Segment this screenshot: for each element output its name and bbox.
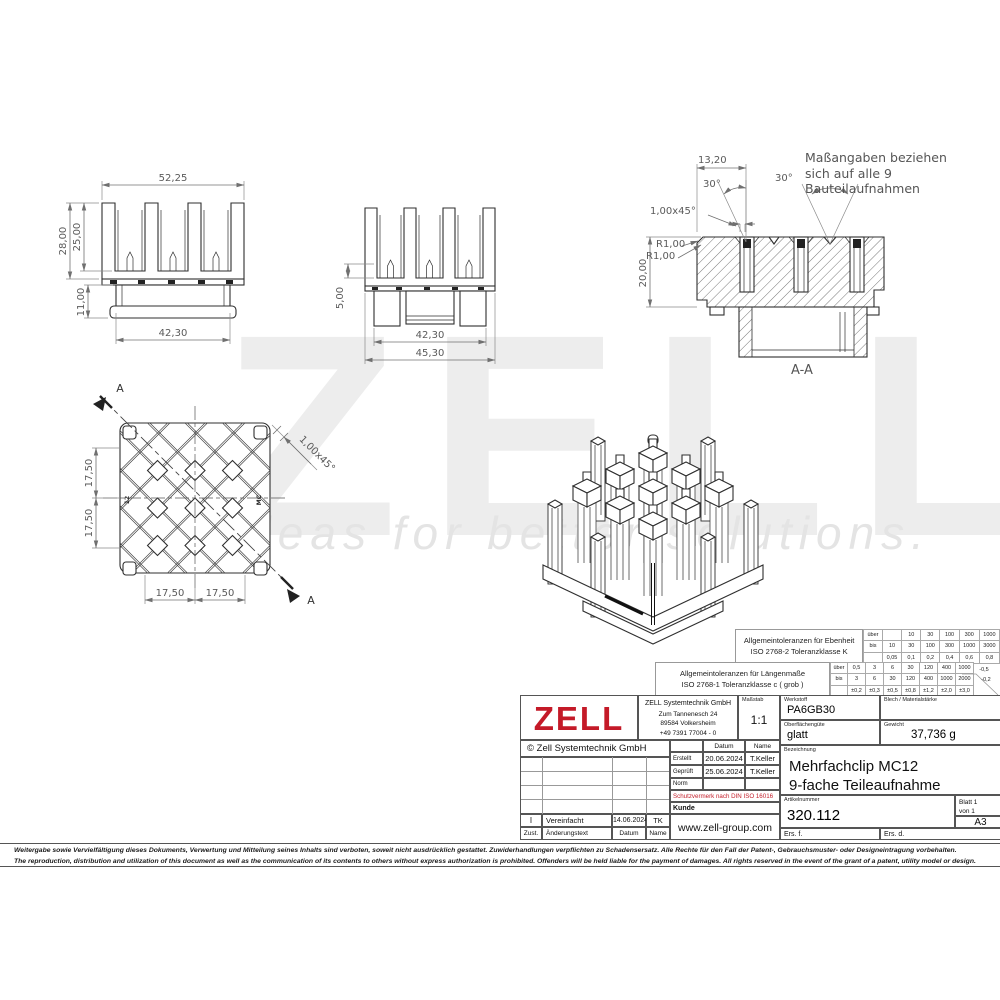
schutzvermerk: Schutzvermerk nach DIN ISO 16016 bbox=[670, 790, 780, 802]
disclaimer-english: The reproduction, distribution and utili… bbox=[14, 857, 1000, 868]
disclaimer-german: Weitergabe sowie Vervielfältigung dieses… bbox=[14, 846, 1000, 857]
designation-label: Bezeichnung bbox=[784, 747, 816, 753]
dim-section-chamfer: 1,00x45° bbox=[650, 206, 696, 217]
dim-side-width-outer: 45,30 bbox=[416, 348, 445, 359]
dim-top-pitch-h1: 17,50 bbox=[156, 588, 185, 599]
dim-front-height-outer: 28,00 bbox=[58, 227, 69, 256]
tolerance-flatness-grid: über10301003001000 bis103010030010003000… bbox=[863, 629, 1000, 664]
created-date: 20.06.2024 bbox=[703, 752, 745, 765]
checked-name: T.Keller bbox=[745, 765, 780, 778]
revision-col-text: Änderungstext bbox=[542, 827, 612, 840]
created-name: T.Keller bbox=[745, 752, 780, 765]
surface-label: Oberflächengüte bbox=[784, 722, 825, 728]
designation-line1: Mehrfachclip MC12 bbox=[789, 758, 918, 775]
tolerance-length-title-2: ISO 2768-1 Toleranzklasse c ( grob ) bbox=[656, 680, 829, 691]
side-view: 5,00 42,30 45,30 bbox=[330, 158, 540, 393]
sheet-number: Blatt 1 bbox=[959, 798, 1000, 807]
company-street: Zum Tannenesch 24 bbox=[639, 710, 737, 720]
title-block: ZELL ZELL Systemtechnik GmbH Zum Tannene… bbox=[520, 695, 1000, 840]
isometric-geometry bbox=[543, 435, 763, 644]
dim-section-angle-left: 30° bbox=[703, 179, 721, 190]
disclaimer: Weitergabe sowie Vervielfältigung dieses… bbox=[0, 843, 1000, 867]
front-view: 52,25 28,00 25,00 42,30 11,00 bbox=[50, 148, 300, 383]
drawing-note-line2: sich auf alle 9 Bauteilaufnahmen bbox=[805, 166, 1000, 197]
section-arrow-label-start: A bbox=[116, 382, 124, 395]
scale-label: Maßstab bbox=[742, 697, 763, 703]
drawing-note-line1: Maßangaben beziehen bbox=[805, 150, 1000, 166]
article-number-label: Artikelnummer bbox=[784, 797, 819, 803]
sheet-thickness-label: Blech / Materialstärke bbox=[884, 697, 937, 703]
article-number-value: 320.112 bbox=[787, 807, 840, 824]
kunde-label: Kunde bbox=[670, 802, 780, 814]
dim-section-radius-2: R1,00 bbox=[646, 251, 675, 262]
approval-col-name: Name bbox=[745, 740, 780, 752]
approval-corner-cell bbox=[670, 740, 703, 752]
drawing-note: Maßangaben beziehen sich auf alle 9 Baut… bbox=[805, 150, 1000, 197]
section-arrow-label-end: A bbox=[307, 594, 315, 607]
sheet-thickness-cell: Blech / Materialstärke bbox=[880, 695, 1000, 720]
replaced-by-label: Ers. d. bbox=[880, 828, 1000, 840]
weight-value: 37,736 g bbox=[911, 729, 956, 741]
material-value: PA6GB30 bbox=[787, 704, 835, 716]
article-number-cell: Artikelnummer 320.112 bbox=[780, 795, 955, 828]
dim-top-pitch-v1: 17,50 bbox=[84, 459, 95, 488]
revision-date: 14.06.2024 bbox=[612, 814, 646, 827]
website: www.zell-group.com bbox=[670, 814, 780, 840]
dim-section-radius-1: R1,00 bbox=[656, 239, 685, 250]
revision-col-datum: Datum bbox=[612, 827, 646, 840]
part-marking-right: MC bbox=[256, 494, 263, 505]
dim-front-width-base: 42,30 bbox=[159, 328, 188, 339]
company-name: ZELL Systemtechnik GmbH bbox=[639, 699, 737, 710]
created-label: Erstellt bbox=[670, 752, 703, 765]
company-phone: +49 7391 77004 - 0 bbox=[639, 729, 737, 739]
side-view-geometry bbox=[365, 208, 495, 326]
norm-name-cell bbox=[745, 778, 780, 790]
revision-index: I bbox=[520, 814, 542, 827]
revision-grid-divider bbox=[646, 757, 647, 814]
material-label: Werkstoff bbox=[784, 697, 807, 703]
edge-tolerance-fragment: -0,5 -0,2 bbox=[960, 662, 1000, 695]
company-logo: ZELL bbox=[520, 695, 638, 740]
edge-tolerance-lower: -0,2 bbox=[981, 677, 990, 683]
checked-label: Geprüft bbox=[670, 765, 703, 778]
revision-name: TK bbox=[646, 814, 670, 827]
dim-section-top: 13,20 bbox=[698, 155, 727, 166]
dim-section-height: 20,00 bbox=[638, 259, 649, 288]
tolerance-table-length: Allgemeintoleranzen für Längenmaße ISO 2… bbox=[655, 662, 974, 697]
company-city: 89584 Volkersheim bbox=[639, 719, 737, 729]
part-marking-left: 12 bbox=[124, 496, 131, 504]
tolerance-length-title-1: Allgemeintoleranzen für Längenmaße bbox=[656, 669, 829, 680]
tolerance-length-grid: über0,536301204001000 bis363012040010002… bbox=[830, 662, 974, 697]
dim-side-width-inner: 42,30 bbox=[416, 330, 445, 341]
surface-cell: Oberflächengüte glatt bbox=[780, 720, 880, 745]
dim-top-pitch-v2: 17,50 bbox=[84, 509, 95, 538]
front-view-geometry bbox=[102, 203, 244, 318]
paper-format: A3 bbox=[955, 816, 1000, 828]
revision-col-zust: Zust. bbox=[520, 827, 542, 840]
section-view-geometry bbox=[697, 237, 884, 357]
section-label: A-A bbox=[791, 363, 813, 378]
replaces-label: Ers. f. bbox=[780, 828, 880, 840]
revision-col-name: Name bbox=[646, 827, 670, 840]
dim-side-stub: 5,00 bbox=[335, 287, 346, 309]
top-view: 12 MC A A 17,50 17,50 17,50 17,50 1,00x4… bbox=[65, 378, 365, 628]
company-address: ZELL Systemtechnik GmbH Zum Tannenesch 2… bbox=[638, 695, 738, 740]
checked-date: 25.06.2024 bbox=[703, 765, 745, 778]
weight-label: Gewicht bbox=[884, 722, 904, 728]
dim-front-height-base: 11,00 bbox=[76, 288, 87, 317]
designation-line2: 9-fache Teileaufnahme bbox=[789, 777, 941, 794]
approval-col-datum: Datum bbox=[703, 740, 745, 752]
norm-label: Norm bbox=[670, 778, 703, 790]
copyright: © Zell Systemtechnik GmbH 2019 bbox=[520, 740, 670, 757]
material-cell: Werkstoff PA6GB30 bbox=[780, 695, 880, 720]
tolerance-flatness-title-1: Allgemeintoleranzen für Ebenheit bbox=[736, 636, 862, 647]
weight-cell: Gewicht 37,736 g bbox=[880, 720, 1000, 745]
isometric-view bbox=[523, 413, 783, 648]
revision-text: Vereinfacht bbox=[542, 814, 612, 827]
revision-grid-divider bbox=[542, 757, 543, 814]
dim-front-height-inner: 25,00 bbox=[72, 223, 83, 252]
designation-cell: Bezeichnung Mehrfachclip MC12 9-fache Te… bbox=[780, 745, 1000, 795]
tolerance-flatness-title: Allgemeintoleranzen für Ebenheit ISO 276… bbox=[735, 629, 863, 664]
dim-front-width-top: 52,25 bbox=[159, 173, 188, 184]
edge-tolerance-upper: -0,5 bbox=[979, 667, 988, 673]
tolerance-length-title: Allgemeintoleranzen für Längenmaße ISO 2… bbox=[655, 662, 830, 697]
sheet-cell: Blatt 1 von 1 bbox=[955, 795, 1000, 816]
revision-grid-divider bbox=[612, 757, 613, 814]
norm-date-cell bbox=[703, 778, 745, 790]
tolerance-flatness-title-2: ISO 2768-2 Toleranzklasse K bbox=[736, 647, 862, 658]
surface-value: glatt bbox=[787, 729, 808, 741]
scale-value: 1:1 bbox=[739, 713, 779, 727]
dim-section-angle-right: 30° bbox=[775, 173, 793, 184]
tolerance-table-flatness: Allgemeintoleranzen für Ebenheit ISO 276… bbox=[735, 629, 1000, 664]
dim-top-chamfer: 1,00x45° bbox=[297, 434, 337, 474]
dim-top-pitch-h2: 17,50 bbox=[206, 588, 235, 599]
scale-cell: Maßstab 1:1 bbox=[738, 695, 780, 740]
